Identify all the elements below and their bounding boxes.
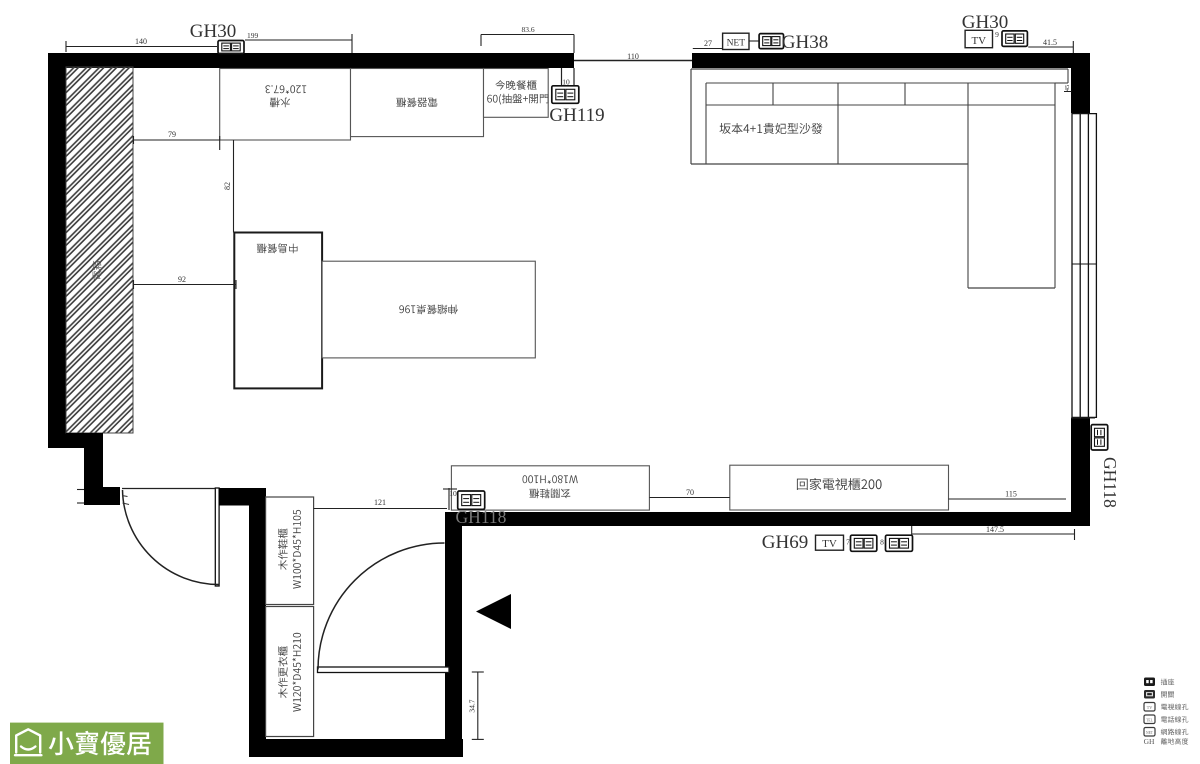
svg-text:GH118: GH118: [1100, 457, 1120, 508]
svg-text:140: 140: [135, 37, 147, 46]
svg-text:115: 115: [1005, 490, 1017, 499]
svg-text:GH118: GH118: [456, 507, 507, 527]
svg-text:9: 9: [995, 30, 999, 39]
svg-text:GH: GH: [1144, 737, 1155, 746]
svg-text:79: 79: [168, 130, 176, 139]
svg-text:147.5: 147.5: [986, 525, 1004, 534]
svg-text:83.6: 83.6: [521, 25, 534, 34]
svg-text:199: 199: [247, 31, 259, 40]
svg-text:8: 8: [880, 538, 884, 547]
svg-text:34.7: 34.7: [468, 699, 477, 712]
svg-text:45: 45: [1064, 85, 1071, 92]
svg-text:TV: TV: [1147, 705, 1153, 710]
svg-text:GH119: GH119: [549, 105, 604, 126]
svg-text:10: 10: [562, 78, 570, 87]
svg-text:92: 92: [178, 275, 186, 284]
svg-text:TV: TV: [822, 538, 837, 550]
svg-text:10: 10: [449, 489, 457, 498]
svg-text:TEL: TEL: [1146, 718, 1153, 722]
svg-text:NET: NET: [727, 39, 746, 49]
svg-text:7: 7: [846, 538, 850, 547]
svg-text:GH69: GH69: [762, 532, 808, 553]
svg-text:70: 70: [686, 488, 694, 497]
svg-text:121: 121: [374, 498, 386, 507]
svg-text:GH30: GH30: [190, 21, 236, 42]
svg-text:NET: NET: [1146, 731, 1154, 735]
svg-text:82: 82: [223, 182, 232, 190]
svg-text:GH38: GH38: [782, 32, 828, 53]
svg-text:27: 27: [704, 39, 712, 48]
svg-text:110: 110: [627, 52, 639, 61]
svg-text:41.5: 41.5: [1043, 38, 1057, 47]
svg-text:TV: TV: [971, 35, 986, 47]
